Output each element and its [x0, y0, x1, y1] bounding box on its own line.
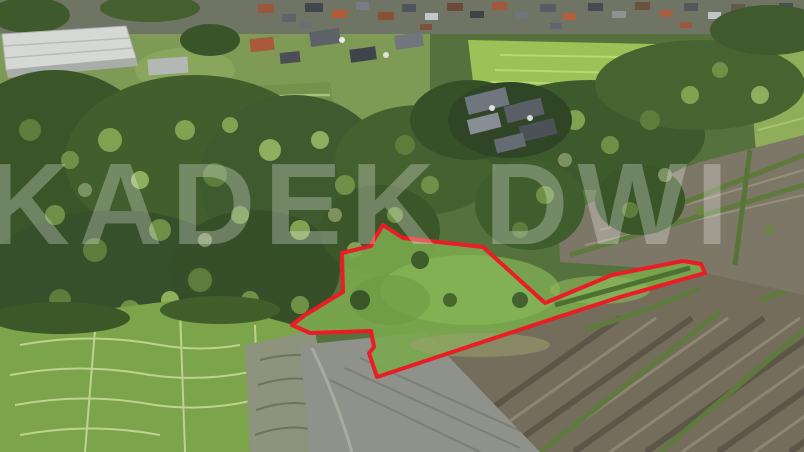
- villa-cluster: [448, 82, 572, 158]
- aerial-scene: [0, 0, 804, 452]
- aerial-photo: KADEK DWI: [0, 0, 804, 452]
